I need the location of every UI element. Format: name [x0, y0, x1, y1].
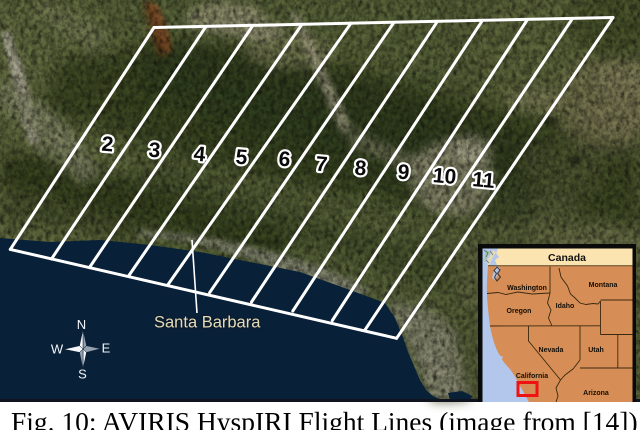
svg-text:Nevada: Nevada — [539, 347, 564, 354]
svg-text:Arizona: Arizona — [583, 390, 609, 397]
svg-text:5: 5 — [235, 146, 249, 170]
svg-text:Montana: Montana — [589, 282, 618, 289]
svg-text:8: 8 — [354, 157, 368, 181]
svg-text:11: 11 — [472, 168, 496, 193]
svg-text:3: 3 — [148, 139, 162, 163]
svg-text:E: E — [102, 341, 111, 356]
svg-text:2: 2 — [101, 133, 115, 157]
svg-text:10: 10 — [432, 164, 457, 189]
svg-text:Idaho: Idaho — [556, 303, 575, 310]
svg-text:Santa Barbara: Santa Barbara — [154, 314, 261, 332]
svg-text:Washington: Washington — [507, 285, 547, 292]
svg-text:9: 9 — [397, 161, 411, 185]
svg-text:6: 6 — [278, 148, 292, 172]
svg-text:Fig. 10: AVIRIS HyspIRI Flight: Fig. 10: AVIRIS HyspIRI Flight Lines (im… — [11, 406, 638, 430]
svg-text:Utah: Utah — [588, 347, 604, 354]
svg-text:S: S — [78, 367, 87, 382]
svg-text:California: California — [516, 373, 548, 380]
svg-text:4: 4 — [193, 143, 207, 167]
svg-text:7: 7 — [315, 153, 329, 177]
svg-text:N: N — [77, 317, 86, 332]
svg-text:Canada: Canada — [548, 252, 586, 264]
svg-text:Oregon: Oregon — [507, 308, 532, 315]
svg-text:W: W — [51, 342, 64, 357]
